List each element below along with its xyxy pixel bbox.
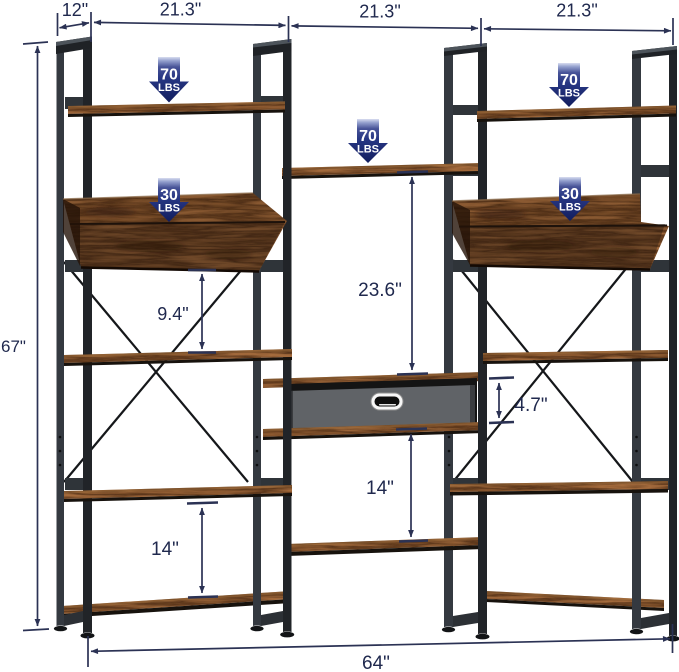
svg-text:LBS: LBS	[357, 144, 379, 156]
svg-text:14": 14"	[366, 478, 394, 499]
svg-text:4.7": 4.7"	[514, 395, 547, 416]
svg-text:12": 12"	[62, 0, 88, 20]
svg-text:LBS: LBS	[158, 203, 180, 215]
svg-text:9.4": 9.4"	[157, 304, 188, 324]
svg-text:LBS: LBS	[158, 82, 180, 94]
svg-text:21.3": 21.3"	[160, 0, 201, 20]
svg-text:LBS: LBS	[559, 202, 581, 214]
svg-text:23.6": 23.6"	[358, 280, 402, 301]
svg-text:70: 70	[160, 67, 178, 84]
svg-text:70: 70	[359, 128, 377, 145]
svg-text:70: 70	[560, 72, 578, 89]
svg-text:67": 67"	[1, 337, 26, 356]
svg-text:21.3": 21.3"	[556, 1, 597, 21]
svg-text:14": 14"	[151, 539, 179, 560]
svg-text:30: 30	[160, 187, 178, 204]
svg-text:21.3": 21.3"	[359, 2, 400, 22]
svg-text:30: 30	[561, 186, 579, 203]
svg-text:LBS: LBS	[558, 88, 580, 100]
svg-text:64": 64"	[362, 653, 390, 672]
